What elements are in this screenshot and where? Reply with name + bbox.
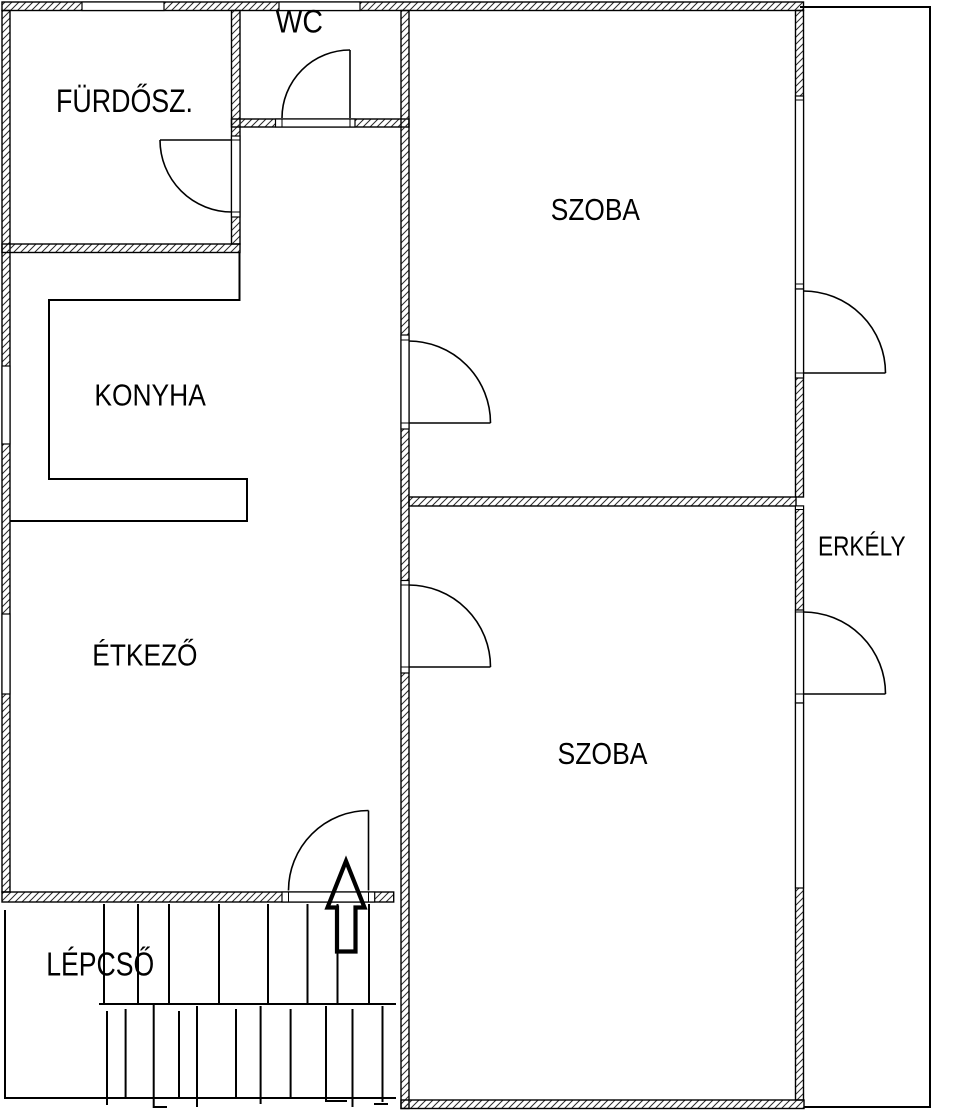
svg-text:KONYHA: KONYHA	[94, 378, 206, 413]
svg-text:SZOBA: SZOBA	[551, 192, 640, 227]
svg-text:ERKÉLY: ERKÉLY	[818, 531, 906, 562]
svg-text:LÉPCSŐ: LÉPCSŐ	[46, 946, 154, 983]
svg-text:WC: WC	[276, 4, 324, 40]
svg-text:ÉTKEZŐ: ÉTKEZŐ	[92, 638, 197, 673]
svg-text:SZOBA: SZOBA	[558, 736, 648, 771]
svg-text:FÜRDŐSZ.: FÜRDŐSZ.	[56, 83, 193, 119]
